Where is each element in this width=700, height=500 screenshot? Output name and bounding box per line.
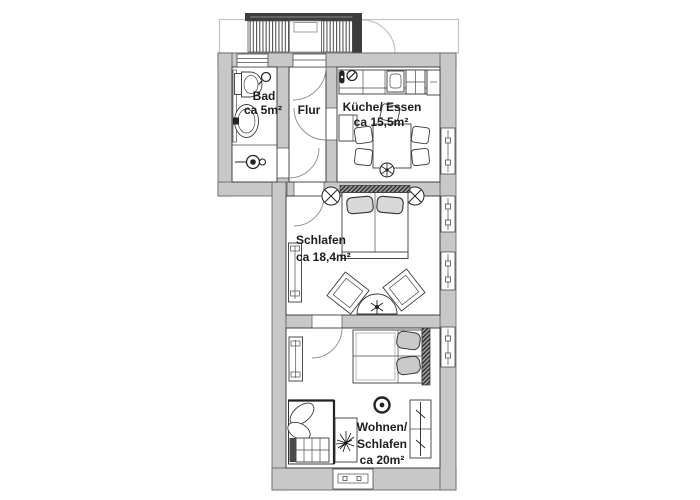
door-arc-wohnen	[312, 328, 342, 358]
door-arc-balcony-flur	[293, 67, 326, 100]
balcony	[220, 13, 459, 53]
wall-flur-kueche-upper	[326, 67, 337, 108]
balcony-side-rail	[353, 13, 363, 53]
plant-icon	[335, 418, 357, 462]
label-flur-name: Flur	[298, 103, 321, 117]
room-flur-outline	[289, 67, 326, 182]
double-bed-icon	[340, 186, 410, 259]
wall-flur-kueche-lower	[326, 140, 337, 182]
label-schlafen-area: ca 18,4m²	[296, 250, 351, 264]
sofa-icon	[285, 399, 334, 464]
door-arc-schlafen	[294, 196, 324, 226]
balcony-door-opening	[293, 54, 326, 67]
label-bad-area: ca 5m²	[244, 103, 282, 117]
bed-icon	[353, 328, 430, 385]
dining-table	[373, 124, 411, 168]
shower-drain-icon	[235, 156, 266, 169]
ceiling-lamp-icon	[375, 398, 390, 413]
stove-icon	[406, 70, 425, 94]
table-centerpiece-icon	[380, 163, 394, 177]
door-arc-bad	[289, 148, 319, 178]
dining-chair-right-2	[411, 148, 430, 166]
thermometer-icon	[340, 71, 345, 84]
label-schlafen-name: Schlafen	[296, 233, 346, 247]
kitchen-sink-icon	[387, 71, 404, 92]
closet-icon	[410, 400, 431, 458]
speaker-icon-left	[322, 187, 340, 205]
wall-left-lower	[272, 182, 286, 490]
window-bottom	[333, 469, 373, 489]
shelf-icon	[289, 337, 303, 381]
bathroom-fixtures	[232, 70, 277, 169]
label-wohnen-line1: Wohnen/	[357, 420, 408, 434]
window-right-3	[441, 252, 455, 290]
window-right-4	[441, 327, 455, 367]
wall-bad-flur-stub	[277, 178, 289, 182]
label-bad-name: Bad	[253, 89, 276, 103]
dishwasher-icon	[347, 71, 357, 81]
dining-chair-right-1	[411, 126, 430, 144]
wall-schlafen-wohnen-left	[286, 315, 312, 328]
dining-chair-left-2	[354, 148, 373, 166]
floorplan-canvas: Bad ca 5m² Flur Küche/ Essen ca 15,5m² S…	[0, 0, 700, 500]
balcony-railing-right	[322, 21, 353, 52]
window-top-bad	[237, 54, 268, 67]
wall-schlafen-wohnen-right	[342, 315, 440, 328]
label-kueche-area: ca 15,5m²	[354, 115, 409, 129]
label-kueche-name: Küche/ Essen	[343, 100, 422, 114]
floorplan-drawing: Bad ca 5m² Flur Küche/ Essen ca 15,5m² S…	[0, 0, 700, 500]
balcony-door-swing-arc	[362, 20, 395, 53]
wall-left-upper	[218, 53, 232, 196]
label-wohnen-area: ca 20m²	[360, 453, 405, 467]
window-right-1	[441, 128, 455, 174]
fridge-icon	[427, 70, 440, 95]
wall-mid-left	[287, 182, 294, 196]
balcony-railing-left	[248, 21, 289, 52]
balcony-table	[294, 23, 317, 33]
window-right-2	[441, 196, 455, 232]
label-wohnen-line2: Schlafen	[357, 437, 407, 451]
